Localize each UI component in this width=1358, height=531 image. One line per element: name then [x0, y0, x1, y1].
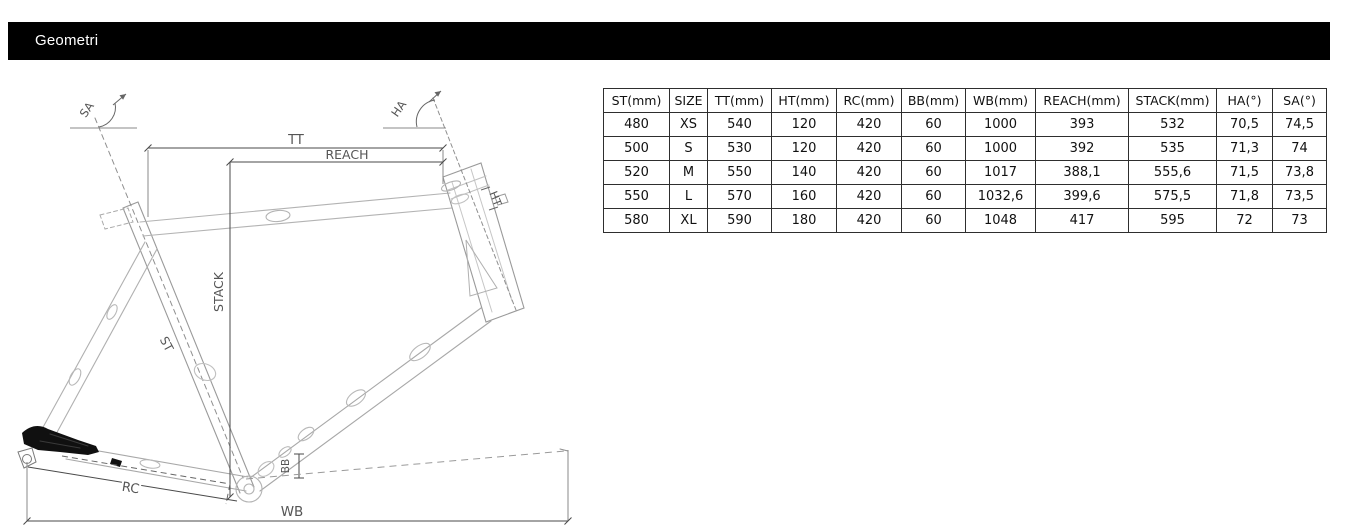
table-cell: 71,5: [1217, 161, 1273, 185]
table-cell: 71,3: [1217, 137, 1273, 161]
table-cell: 388,1: [1036, 161, 1129, 185]
label-ht: HT: [486, 189, 504, 208]
column-header: STACK(mm): [1129, 89, 1217, 113]
table-cell: 420: [837, 161, 902, 185]
table-cell: 60: [902, 185, 966, 209]
table-cell: 60: [902, 113, 966, 137]
column-header: ST(mm): [604, 89, 670, 113]
table-cell: 74,5: [1273, 113, 1327, 137]
column-header: HT(mm): [772, 89, 837, 113]
table-cell: 74: [1273, 137, 1327, 161]
table-cell: 392: [1036, 137, 1129, 161]
table-cell: S: [670, 137, 708, 161]
table-cell: XS: [670, 113, 708, 137]
table-cell: 180: [772, 209, 837, 233]
frame-drawing: [18, 98, 568, 502]
table-cell: L: [670, 185, 708, 209]
table-cell: 480: [604, 113, 670, 137]
dimension-lines: [24, 91, 572, 525]
table-cell: 1000: [966, 137, 1036, 161]
table-cell: 417: [1036, 209, 1129, 233]
table-cell: 73,5: [1273, 185, 1327, 209]
table-cell: 530: [708, 137, 772, 161]
diagram-labels: TT REACH STACK ST HT BB RC WB SA HA: [77, 98, 505, 520]
column-header: HA(°): [1217, 89, 1273, 113]
table-row: 500S53012042060100039253571,374: [604, 137, 1327, 161]
axle-bolt: [110, 458, 122, 467]
table-row: 550L570160420601032,6399,6575,571,873,5: [604, 185, 1327, 209]
label-ha: HA: [388, 98, 409, 120]
label-stack: STACK: [211, 271, 226, 312]
table-cell: 120: [772, 137, 837, 161]
column-header: TT(mm): [708, 89, 772, 113]
table-cell: 500: [604, 137, 670, 161]
column-header: RC(mm): [837, 89, 902, 113]
label-rc: RC: [121, 480, 141, 498]
table-cell: 520: [604, 161, 670, 185]
table-cell: 595: [1129, 209, 1217, 233]
label-reach: REACH: [325, 147, 368, 162]
table-cell: 60: [902, 161, 966, 185]
table-row: 480XS54012042060100039353270,574,5: [604, 113, 1327, 137]
table-cell: 73,8: [1273, 161, 1327, 185]
table-cell: 420: [837, 209, 902, 233]
table-cell: 60: [902, 209, 966, 233]
table-cell: XL: [670, 209, 708, 233]
table-cell: 1048: [966, 209, 1036, 233]
page: Geometri: [0, 0, 1358, 531]
column-header: BB(mm): [902, 89, 966, 113]
bike-geometry-diagram: TT REACH STACK ST HT BB RC WB SA HA: [0, 0, 600, 531]
table-cell: 399,6: [1036, 185, 1129, 209]
column-header: REACH(mm): [1036, 89, 1129, 113]
table-cell: 73: [1273, 209, 1327, 233]
table-cell: 570: [708, 185, 772, 209]
table-cell: 1017: [966, 161, 1036, 185]
label-st: ST: [157, 334, 177, 354]
table-row: 520M550140420601017388,1555,671,573,8: [604, 161, 1327, 185]
table-cell: 1000: [966, 113, 1036, 137]
rear-dropout-hardware: [22, 426, 99, 455]
table-cell: 1032,6: [966, 185, 1036, 209]
table-header-row: ST(mm)SIZETT(mm)HT(mm)RC(mm)BB(mm)WB(mm)…: [604, 89, 1327, 113]
table-cell: 72: [1217, 209, 1273, 233]
table-cell: 590: [708, 209, 772, 233]
steering-axis-dashed: [433, 98, 516, 310]
table-cell: 535: [1129, 137, 1217, 161]
label-bb: BB: [280, 459, 292, 473]
table-cell: 120: [772, 113, 837, 137]
table-cell: 420: [837, 137, 902, 161]
table-cell: 160: [772, 185, 837, 209]
table-cell: 71,8: [1217, 185, 1273, 209]
geometry-table: ST(mm)SIZETT(mm)HT(mm)RC(mm)BB(mm)WB(mm)…: [603, 88, 1327, 233]
table-cell: M: [670, 161, 708, 185]
table-cell: 580: [604, 209, 670, 233]
table-cell: 140: [772, 161, 837, 185]
table-cell: 550: [604, 185, 670, 209]
geometry-table-container: ST(mm)SIZETT(mm)HT(mm)RC(mm)BB(mm)WB(mm)…: [603, 88, 1327, 233]
column-header: SIZE: [670, 89, 708, 113]
label-wb: WB: [281, 504, 304, 520]
column-header: WB(mm): [966, 89, 1036, 113]
table-cell: 550: [708, 161, 772, 185]
table-cell: 540: [708, 113, 772, 137]
table-cell: 60: [902, 137, 966, 161]
label-sa: SA: [77, 99, 97, 120]
table-cell: 420: [837, 185, 902, 209]
label-tt: TT: [287, 133, 304, 148]
table-cell: 70,5: [1217, 113, 1273, 137]
table-cell: 420: [837, 113, 902, 137]
table-cell: 575,5: [1129, 185, 1217, 209]
table-cell: 532: [1129, 113, 1217, 137]
table-row: 580XL5901804206010484175957273: [604, 209, 1327, 233]
column-header: SA(°): [1273, 89, 1327, 113]
table-cell: 555,6: [1129, 161, 1217, 185]
table-cell: 393: [1036, 113, 1129, 137]
